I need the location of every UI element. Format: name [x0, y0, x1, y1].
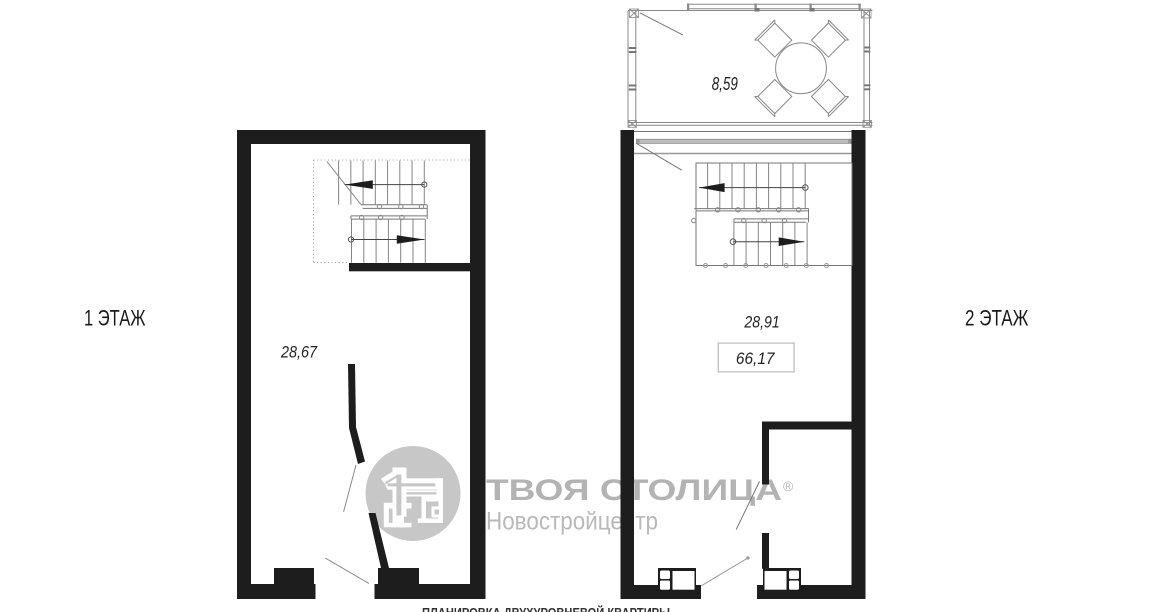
svg-text:1 ЭТАЖ: 1 ЭТАЖ — [84, 305, 146, 330]
svg-text:®: ® — [783, 478, 794, 494]
svg-text:2 ЭТАЖ: 2 ЭТАЖ — [965, 305, 1029, 330]
svg-text:66,17: 66,17 — [736, 350, 775, 368]
svg-text:28,67: 28,67 — [280, 343, 318, 361]
svg-text:28,91: 28,91 — [744, 314, 780, 332]
svg-text:ПЛАНИРОВКА ДВУХУРОВНЕВОЙ КВАРТ: ПЛАНИРОВКА ДВУХУРОВНЕВОЙ КВАРТИРЫ — [422, 605, 670, 612]
svg-text:8,59: 8,59 — [712, 74, 738, 94]
